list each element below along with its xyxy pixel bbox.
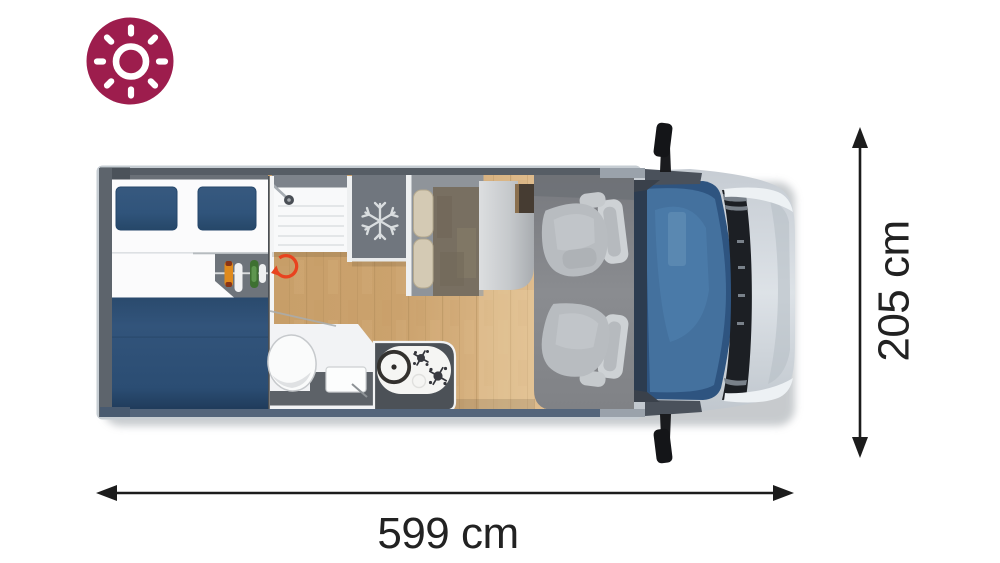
svg-text:205 cm: 205 cm xyxy=(870,220,919,361)
svg-text:599 cm: 599 cm xyxy=(377,509,518,558)
